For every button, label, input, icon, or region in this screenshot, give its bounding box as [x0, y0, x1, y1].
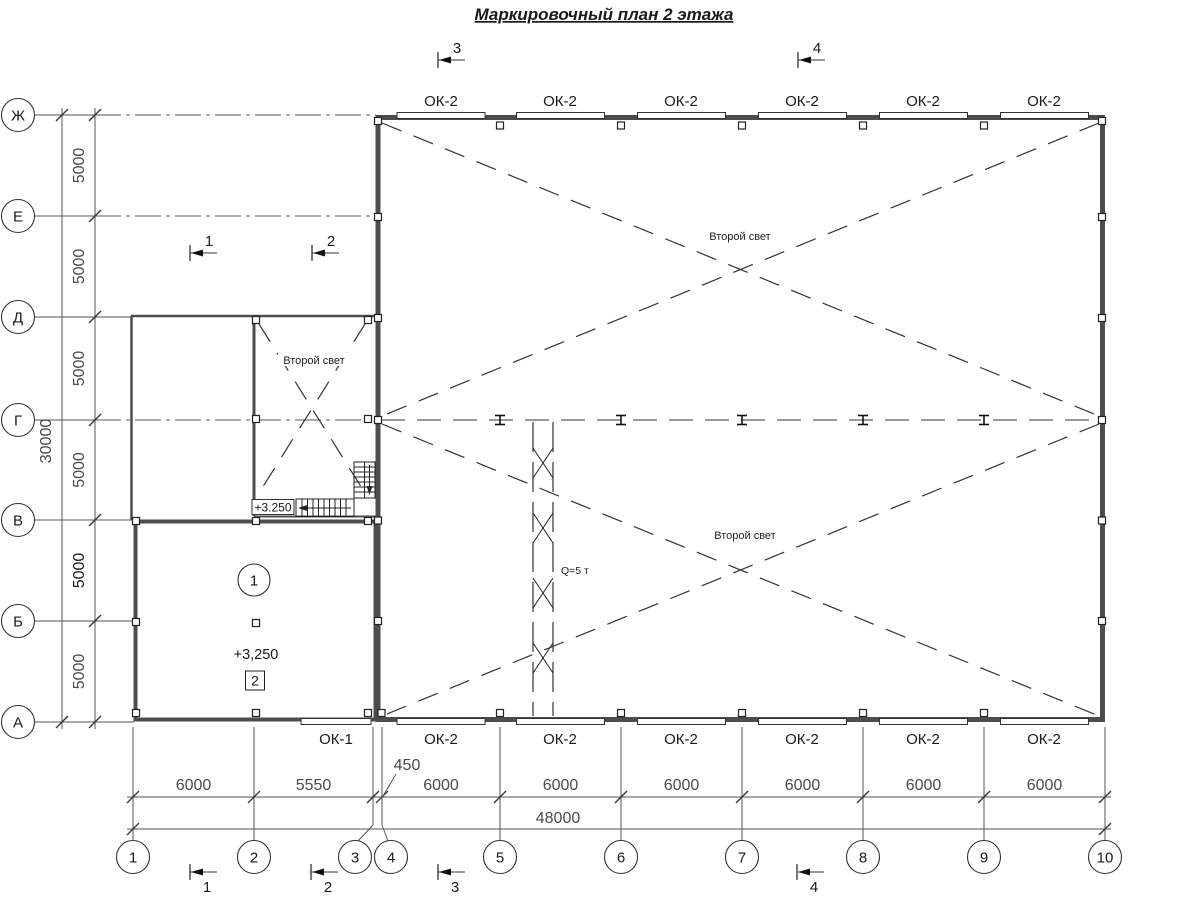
axis-bubble-label: 8 [859, 850, 867, 867]
dim-label: 6000 [664, 777, 700, 794]
section-marker-top-3: 3 [438, 40, 465, 68]
bottom-dimensions: 6000 5550 450 6000 6000 6000 6000 6000 6… [127, 727, 1111, 841]
stair-arrow-icon [367, 486, 373, 495]
dim-label: 5000 [71, 249, 88, 285]
crane-runway [533, 422, 553, 716]
window-label: ОК-2 [1027, 93, 1061, 110]
axis-bubble-label: А [13, 715, 23, 732]
dim-label: 6000 [906, 777, 942, 794]
section-marker-bottom-3: 3 [438, 864, 465, 896]
window-label: ОК-2 [664, 93, 698, 110]
floor-plan-drawing: Маркировочный план 2 этажа [0, 0, 1200, 900]
top-window-labels: ОК-2 ОК-2 ОК-2 ОК-2 ОК-2 ОК-2 [424, 93, 1061, 110]
axis-bubble-label: Б [13, 614, 23, 631]
section-marker-bottom-2: 2 [311, 864, 338, 896]
drawing-title: Маркировочный план 2 этажа [475, 5, 734, 24]
window-label: ОК-2 [906, 93, 940, 110]
axis-bubble-label: 10 [1097, 850, 1114, 867]
axis-bubble-label: 9 [980, 850, 988, 867]
crane-capacity-label: Q=5 т [561, 565, 589, 577]
axis-bubble-label: 1 [129, 850, 137, 867]
section-number: 2 [324, 879, 332, 896]
section-markers: 3 4 1 2 1 2 3 [190, 40, 825, 896]
window-label: ОК-2 [424, 93, 458, 110]
section-number: 3 [451, 879, 459, 896]
stair-arrow-icon [298, 505, 308, 511]
section-marker-bottom-4: 4 [797, 864, 824, 896]
section-number: 1 [203, 879, 211, 896]
section-number: 4 [810, 879, 818, 896]
dim-label: 6000 [1027, 777, 1063, 794]
axis-bubble-label: 4 [387, 850, 395, 867]
window-label: ОК-2 [906, 731, 940, 748]
plan-svg: Маркировочный план 2 этажа [0, 0, 1200, 900]
section-marker-mid-2: 2 [312, 233, 339, 261]
section-marker-mid-1: 1 [190, 233, 217, 261]
axis-bubble-label: Е [13, 209, 23, 226]
dim-label: 5000 [71, 654, 88, 690]
dim-label: 6000 [423, 777, 459, 794]
axis-bubble-label: Г [14, 413, 22, 430]
axis-bubble-label: 6 [617, 850, 625, 867]
window-label: ОК-2 [664, 731, 698, 748]
window-label: ОК-1 [319, 731, 353, 748]
bottom-window-labels: ОК-1 ОК-2 ОК-2 ОК-2 ОК-2 ОК-2 ОК-2 [319, 731, 1061, 748]
dim-offset-label: 450 [394, 757, 421, 774]
col-axis-bubbles: 1 2 3 4 5 6 7 8 9 10 [117, 841, 1122, 874]
window-label: ОК-2 [543, 93, 577, 110]
section-number: 1 [205, 233, 213, 250]
axis-bubble-label: 3 [351, 850, 359, 867]
axis-bubble-label: Ж [11, 108, 25, 125]
axis-bubble-label: В [13, 513, 23, 530]
dim-label: 5000 [71, 553, 88, 589]
section-number: 4 [813, 40, 821, 57]
window-label: ОК-2 [543, 731, 577, 748]
dim-label: 6000 [785, 777, 821, 794]
dim-label: 5000 [71, 351, 88, 387]
room-tag-circle-label: 1 [250, 573, 258, 590]
window-label: ОК-2 [785, 93, 819, 110]
room-tag-square-label: 2 [251, 673, 259, 689]
row-axis-bubbles: Ж Е Д Г В Б А [2, 99, 35, 739]
second-light-label: Второй свет [709, 231, 770, 243]
walls [131, 118, 1103, 720]
staircase: +3.250 [252, 462, 375, 517]
dim-total-label: 30000 [38, 419, 55, 464]
window-label: ОК-2 [1027, 731, 1061, 748]
axis-bubble-label: 7 [738, 850, 746, 867]
window-label: ОК-2 [785, 731, 819, 748]
window-label: ОК-2 [424, 731, 458, 748]
section-marker-bottom-1: 1 [190, 864, 217, 896]
second-light-label: Второй свет [714, 530, 775, 542]
second-light-label: Второй свет [283, 355, 344, 367]
section-number: 2 [327, 233, 335, 250]
main-hall-wall [378, 118, 1103, 720]
dim-total-label: 48000 [536, 810, 581, 827]
dim-label: 5000 [71, 148, 88, 184]
room-level-label: +3,250 [234, 647, 279, 663]
axis-bubble-label: Д [13, 310, 23, 327]
section-number: 3 [453, 40, 461, 57]
stair-level-label: +3.250 [254, 501, 291, 515]
dim-label: 5550 [296, 777, 332, 794]
dim-label: 6000 [176, 777, 212, 794]
left-dimensions: 5000 5000 5000 5000 5000 5000 30000 [38, 108, 101, 729]
axis-bubble-label: 5 [496, 850, 504, 867]
axis-bubble-label: 2 [250, 850, 258, 867]
column-markers [133, 118, 1106, 627]
annotations: Второй свет Второй свет Второй свет Q=5 … [234, 228, 788, 690]
row-axis-lines [35, 115, 377, 722]
dim-label: 5000 [71, 452, 88, 488]
dim-label: 6000 [543, 777, 579, 794]
top-windows [397, 113, 1089, 130]
section-marker-top-4: 4 [798, 40, 825, 68]
